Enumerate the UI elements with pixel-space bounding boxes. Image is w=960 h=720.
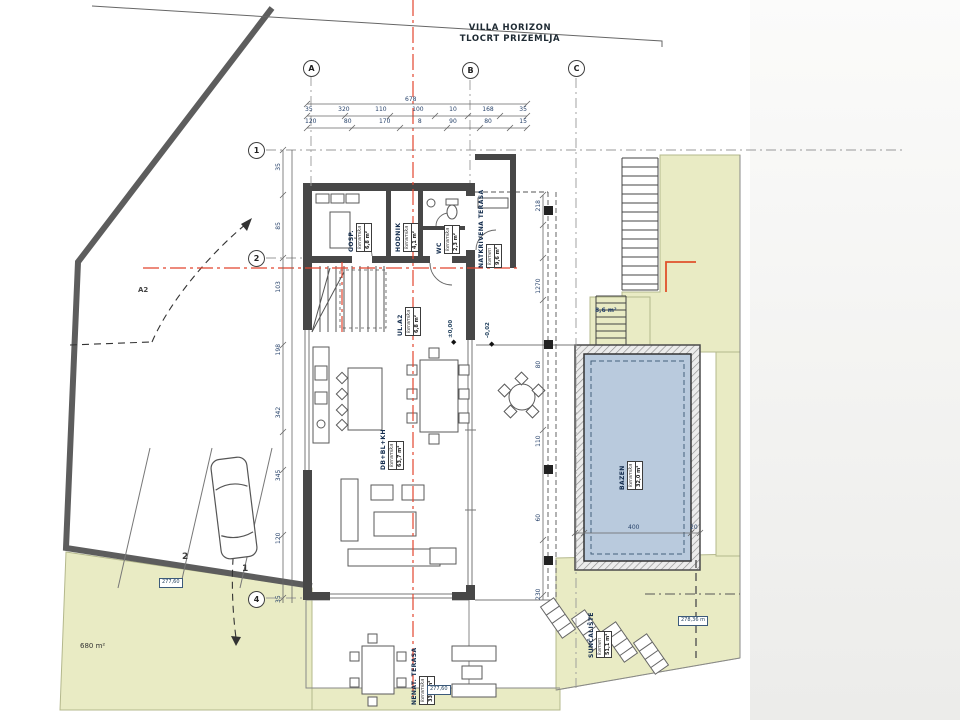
grid-bubble-c: C xyxy=(568,60,585,77)
level-diamond-icon: ◆ xyxy=(451,339,456,346)
dimension-chain-left: 35120 345342 198103 8535 xyxy=(276,163,282,603)
level-marker-terrace: -0,02 xyxy=(486,322,492,338)
lawn-area-label: 8,6 m² xyxy=(595,308,617,314)
dimension-chain-top-upper: 35320 110100 10168 35 xyxy=(305,107,527,113)
room-label-natkrivena-terasa: NATKRIVENA TERASA kamen9,6 m² xyxy=(479,189,502,268)
plot-area-label: 680 m² xyxy=(80,643,105,650)
dimension-overall: 678 xyxy=(405,97,416,103)
grid-bubble-4: 4 xyxy=(248,591,265,608)
grid-bubble-a: A xyxy=(303,60,320,77)
drawing-title: VILLA HORIZON TLOCRT PRIZEMLJA xyxy=(448,23,572,44)
spot-elevation-sun-deck: 278,36 m xyxy=(678,616,708,626)
room-label-wc: WC keramika2,3 m² xyxy=(437,225,460,254)
room-label-ulaz: UL.A2 keramika6,8 m² xyxy=(398,307,421,336)
project-name: VILLA HORIZON xyxy=(448,23,572,34)
room-label-hodnik: HODNIK keramika4,1 m² xyxy=(396,223,419,252)
spot-elevation-parking: 277,60 xyxy=(159,578,183,588)
dimension-chain-right: 23060 11080 1270218 xyxy=(536,200,542,600)
car xyxy=(210,456,258,560)
room-label-suncaliste: SUNČALIŠTE kamen51,1 m² xyxy=(589,612,612,658)
floor-plan-page: VILLA HORIZON TLOCRT PRIZEMLJA A B C 1 2… xyxy=(0,0,960,720)
level-marker-main: ±0,00 xyxy=(449,320,455,338)
parking-stall-2-label: 2 xyxy=(182,553,188,562)
title-leader-line xyxy=(92,6,662,47)
grid-bubble-b: B xyxy=(462,62,479,79)
spot-elevation-terrace: 277,60 xyxy=(427,685,451,695)
room-label-gosp: GOSP. keramika6,8 m² xyxy=(349,223,372,252)
grid-bubble-1: 1 xyxy=(248,142,265,159)
interior-stairs xyxy=(312,266,386,332)
drawing-name: TLOCRT PRIZEMLJA xyxy=(448,34,572,45)
room-label-bazen: BAZEN keramika32,0 m² xyxy=(620,461,643,490)
furniture xyxy=(313,194,545,706)
dimension-pool-edge: 20 xyxy=(690,525,698,531)
room-label-nenatkrivena-terasa: NENAT. TERASA keramika33,5 m² xyxy=(412,648,435,706)
parking-stall-1-label: 1 xyxy=(242,565,248,574)
dimension-chain-top-lower: 12080 1708 9080 15 xyxy=(305,119,527,125)
level-diamond-icon: ◆ xyxy=(489,341,494,348)
grid-bubble-2: 2 xyxy=(248,250,265,267)
dimension-pool-length: 400 xyxy=(628,525,639,531)
room-label-dnevni-boravak: DB+BL+KH keramika63,7 m² xyxy=(381,429,404,470)
axis-a2-label: A2 xyxy=(138,287,148,294)
pool xyxy=(575,345,700,570)
